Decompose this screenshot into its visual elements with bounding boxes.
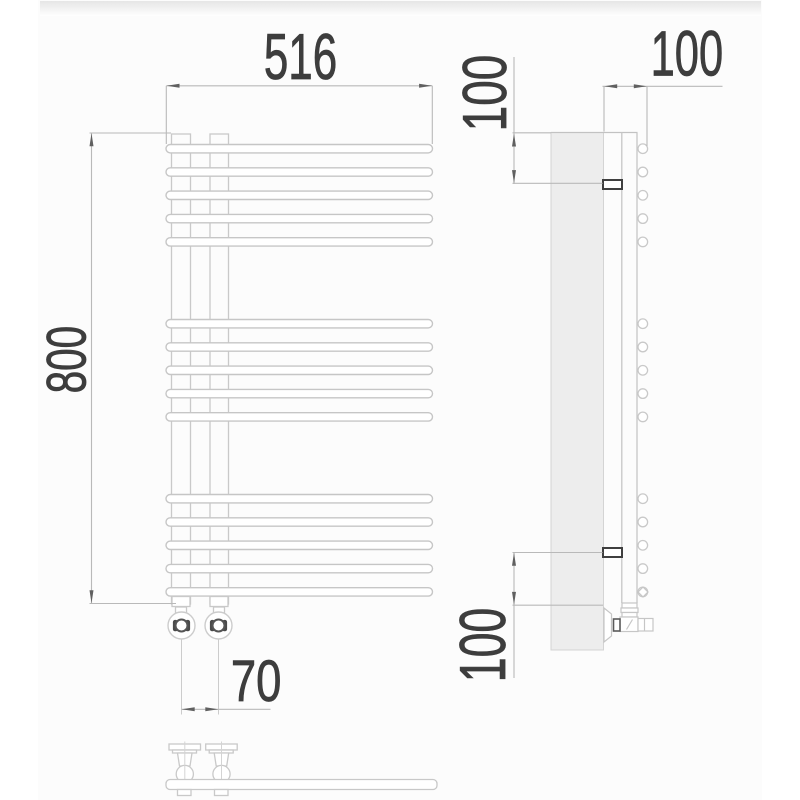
svg-text:516: 516 — [264, 21, 337, 93]
svg-text:70: 70 — [231, 650, 282, 715]
svg-text:800: 800 — [36, 326, 98, 394]
svg-text:100: 100 — [447, 608, 519, 682]
svg-text:100: 100 — [651, 17, 724, 90]
svg-text:100: 100 — [450, 55, 519, 132]
